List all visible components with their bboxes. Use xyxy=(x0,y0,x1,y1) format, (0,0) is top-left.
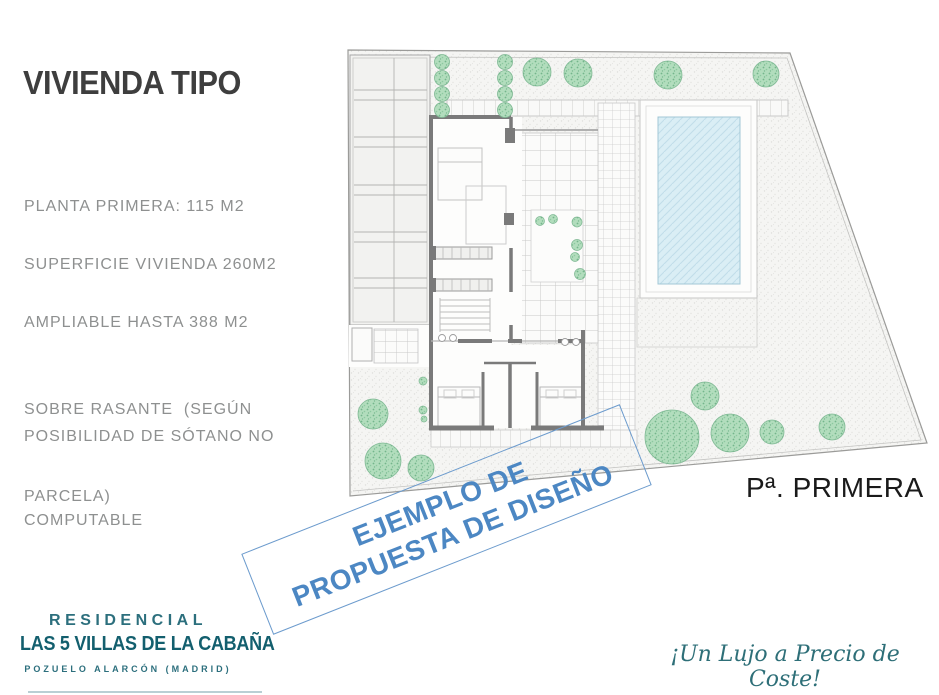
spec-sotano: POSIBILIDAD DE SÓTANO NO COMPUTABLE xyxy=(24,367,274,591)
entry-path xyxy=(349,325,431,367)
brand-block: RESIDENCIAL LAS 5 VILLAS DE LA CABAÑA PO… xyxy=(8,612,248,674)
slogan: ¡Un Lujo a Precio de Coste! xyxy=(640,642,930,692)
paved-path xyxy=(598,103,635,443)
brand-residencial: RESIDENCIAL xyxy=(8,612,248,630)
slide: VIVIENDA TIPO PLANTA PRIMERA: 115 M2 SUP… xyxy=(0,0,939,695)
spec-line: AMPLIABLE HASTA 388 M2 xyxy=(24,308,252,337)
brand-location: POZUELO ALARCÓN (MADRID) xyxy=(8,664,248,674)
page-title: VIVIENDA TIPO xyxy=(23,64,241,102)
floor-label: Pª. PRIMERA xyxy=(746,472,924,504)
spec-line: POSIBILIDAD DE SÓTANO NO xyxy=(24,423,274,451)
brand-name: LAS 5 VILLAS DE LA CABAÑA xyxy=(20,633,236,656)
pergola-terrace xyxy=(520,133,598,343)
spec-line: COMPUTABLE xyxy=(24,507,274,535)
driveway xyxy=(350,55,430,325)
footer-divider xyxy=(28,691,262,693)
